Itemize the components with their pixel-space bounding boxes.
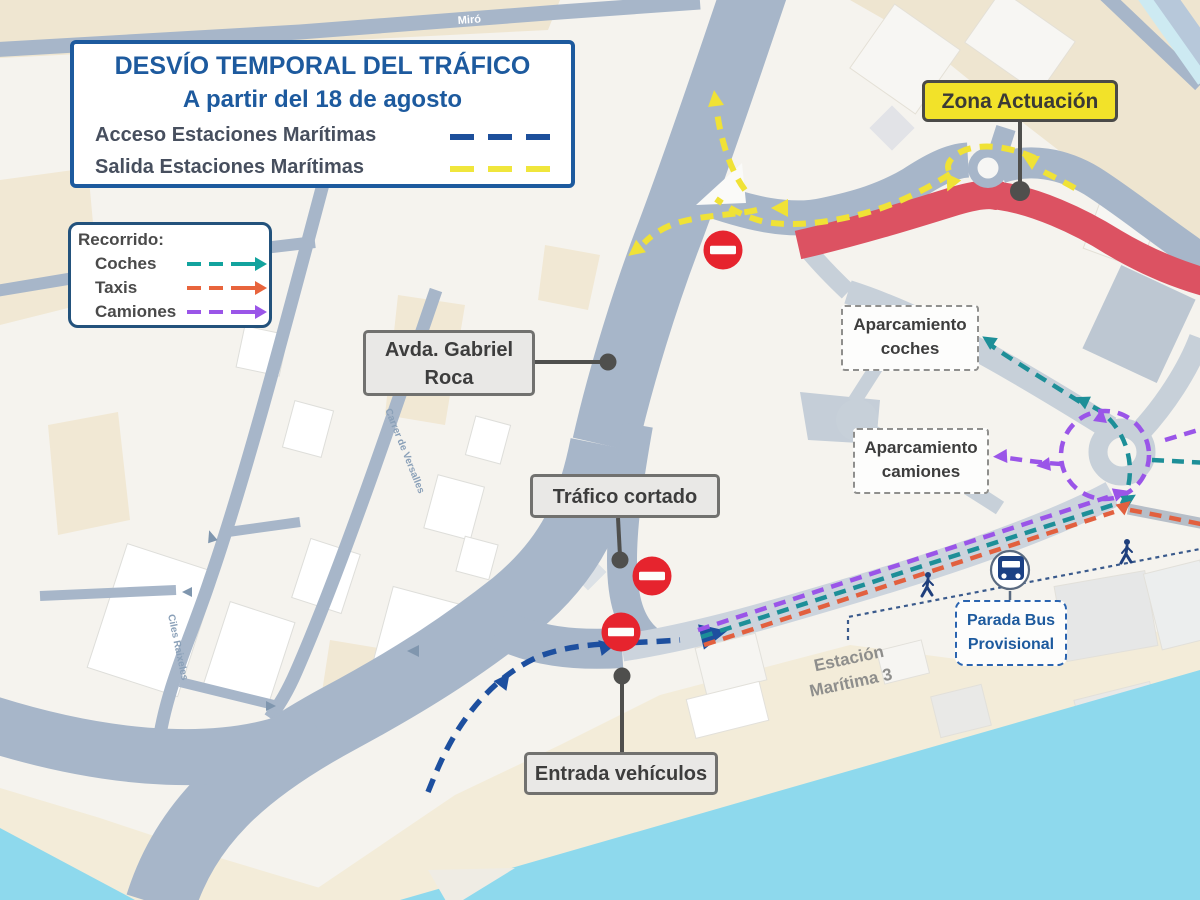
svg-text:Miró: Miró (457, 13, 481, 27)
